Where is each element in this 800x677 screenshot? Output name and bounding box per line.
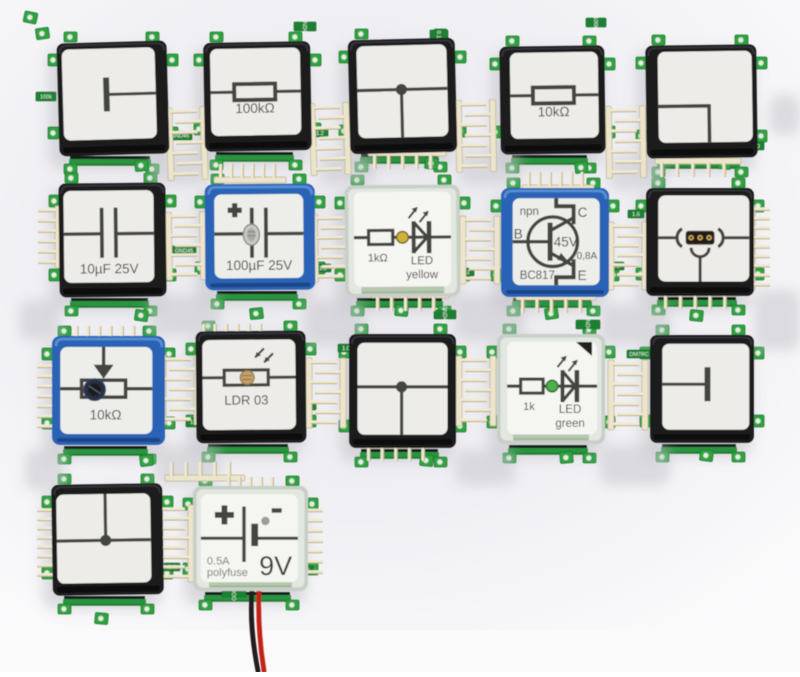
svg-text:green: green [555,418,584,430]
svg-text:C: C [578,205,588,220]
svg-text:LED: LED [411,255,433,267]
svg-text:GND45: GND45 [301,17,307,35]
svg-text:1.0: 1.0 [342,346,350,352]
svg-text:100µF 25V: 100µF 25V [226,258,292,273]
svg-text:0.5A: 0.5A [207,556,230,568]
svg-text:GND45: GND45 [171,134,189,140]
svg-text:yellow: yellow [406,269,439,281]
svg-text:GND45: GND45 [584,315,590,333]
svg-text:45V: 45V [554,235,578,250]
svg-text:1.6: 1.6 [632,212,640,218]
svg-text:BC817: BC817 [520,270,555,282]
svg-text:9V: 9V [259,551,292,581]
svg-text:npn: npn [520,206,539,218]
svg-text:0.1: 0.1 [435,31,441,39]
svg-text:B: B [514,227,523,242]
svg-text:10kΩ: 10kΩ [90,408,122,423]
svg-text:100kΩ: 100kΩ [235,101,275,117]
svg-text:LED: LED [559,404,581,416]
svg-text:10µF 25V: 10µF 25V [80,261,139,277]
svg-text:10kΩ: 10kΩ [538,104,570,119]
svg-text:100k: 100k [592,17,598,29]
svg-text:DM7RC: DM7RC [629,352,649,358]
svg-text:GND45: GND45 [441,305,447,323]
svg-text:polyfuse: polyfuse [207,567,248,579]
svg-text:1.2: 1.2 [316,131,324,137]
svg-text:LDR 03: LDR 03 [224,392,268,407]
svg-text:E: E [578,268,587,283]
svg-text:1k: 1k [523,401,535,413]
svg-text:100k: 100k [40,95,52,101]
svg-text:0,8A: 0,8A [577,251,598,262]
svg-text:1kΩ: 1kΩ [368,252,388,264]
